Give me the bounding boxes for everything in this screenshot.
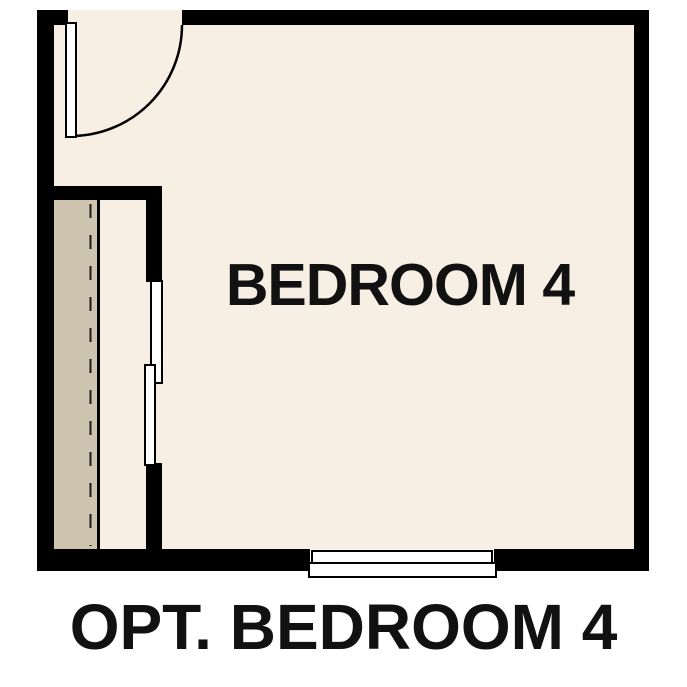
exterior-wall-bottom-right [494,549,649,571]
window-sill-lower [309,563,496,577]
exterior-wall-top [182,10,649,25]
door-opening-gap [68,10,182,25]
entry-door-leaf [66,23,76,137]
window [309,549,496,577]
floor-plan-drawing [0,0,687,687]
room-name-label: BEDROOM 4 [170,256,630,315]
plan-caption: OPT. BEDROOM 4 [0,595,687,659]
exterior-wall-right [634,10,649,571]
closet-bypass-door-left [145,365,155,465]
closet-shelf-edge-line [97,200,100,549]
closet-header-wall [37,186,162,200]
exterior-wall-left [37,10,54,571]
floor-plan: BEDROOM 4 OPT. BEDROOM 4 [0,0,687,687]
window-pane-upper [312,551,492,563]
closet-jamb-wall-lower [146,463,162,549]
closet-jamb-wall-upper [146,199,162,282]
exterior-wall-bottom-left [37,549,310,571]
